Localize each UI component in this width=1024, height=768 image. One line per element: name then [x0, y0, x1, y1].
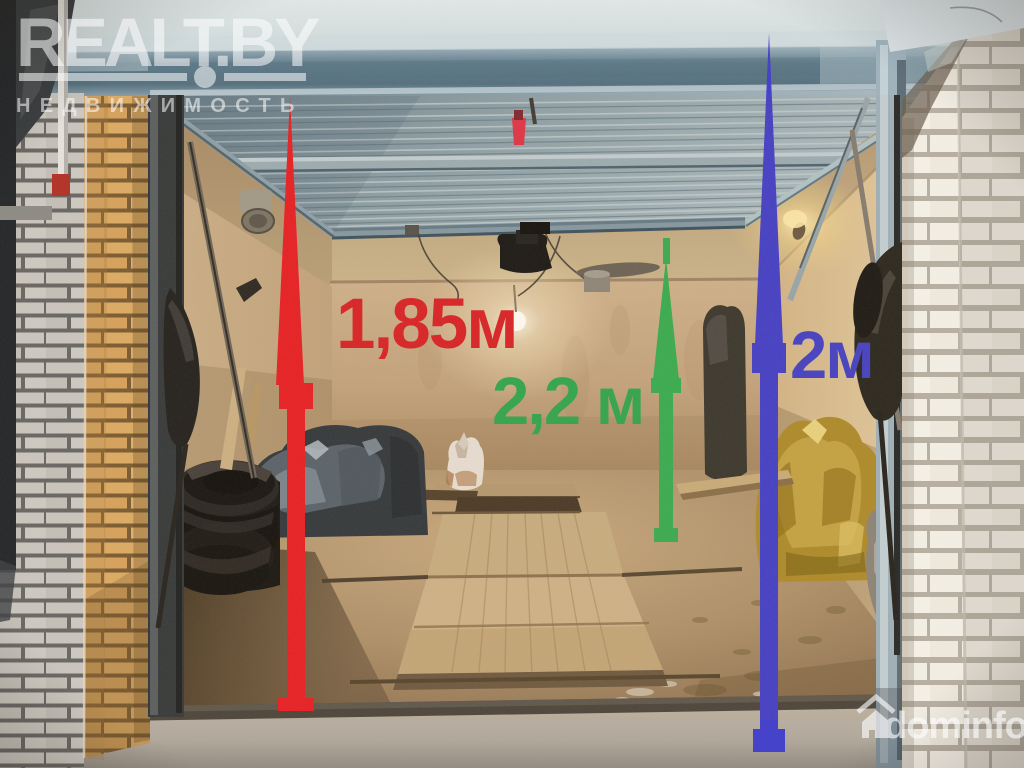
svg-text:dominfo: dominfo — [884, 705, 1024, 747]
svg-text:НЕДВИЖИМОСТЬ: НЕДВИЖИМОСТЬ — [16, 95, 304, 117]
svg-text:REALT.BY: REALT.BY — [16, 4, 319, 81]
